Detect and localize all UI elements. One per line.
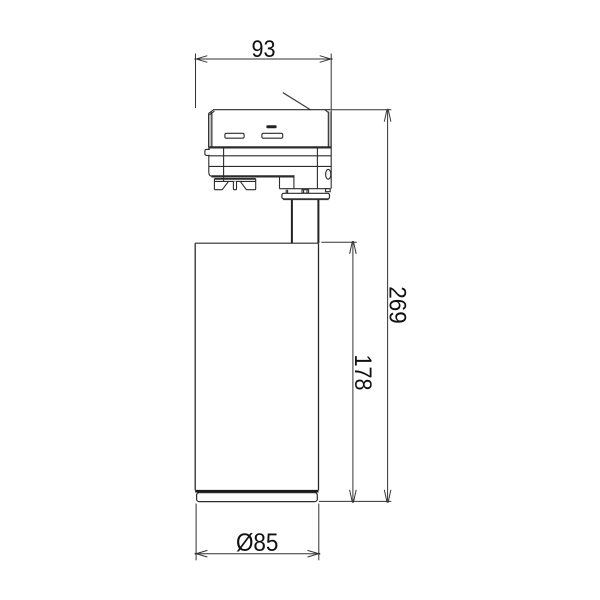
svg-text:93: 93	[252, 36, 276, 63]
svg-text:178: 178	[349, 355, 376, 391]
svg-text:269: 269	[384, 286, 411, 324]
svg-text:Ø85: Ø85	[236, 529, 279, 557]
